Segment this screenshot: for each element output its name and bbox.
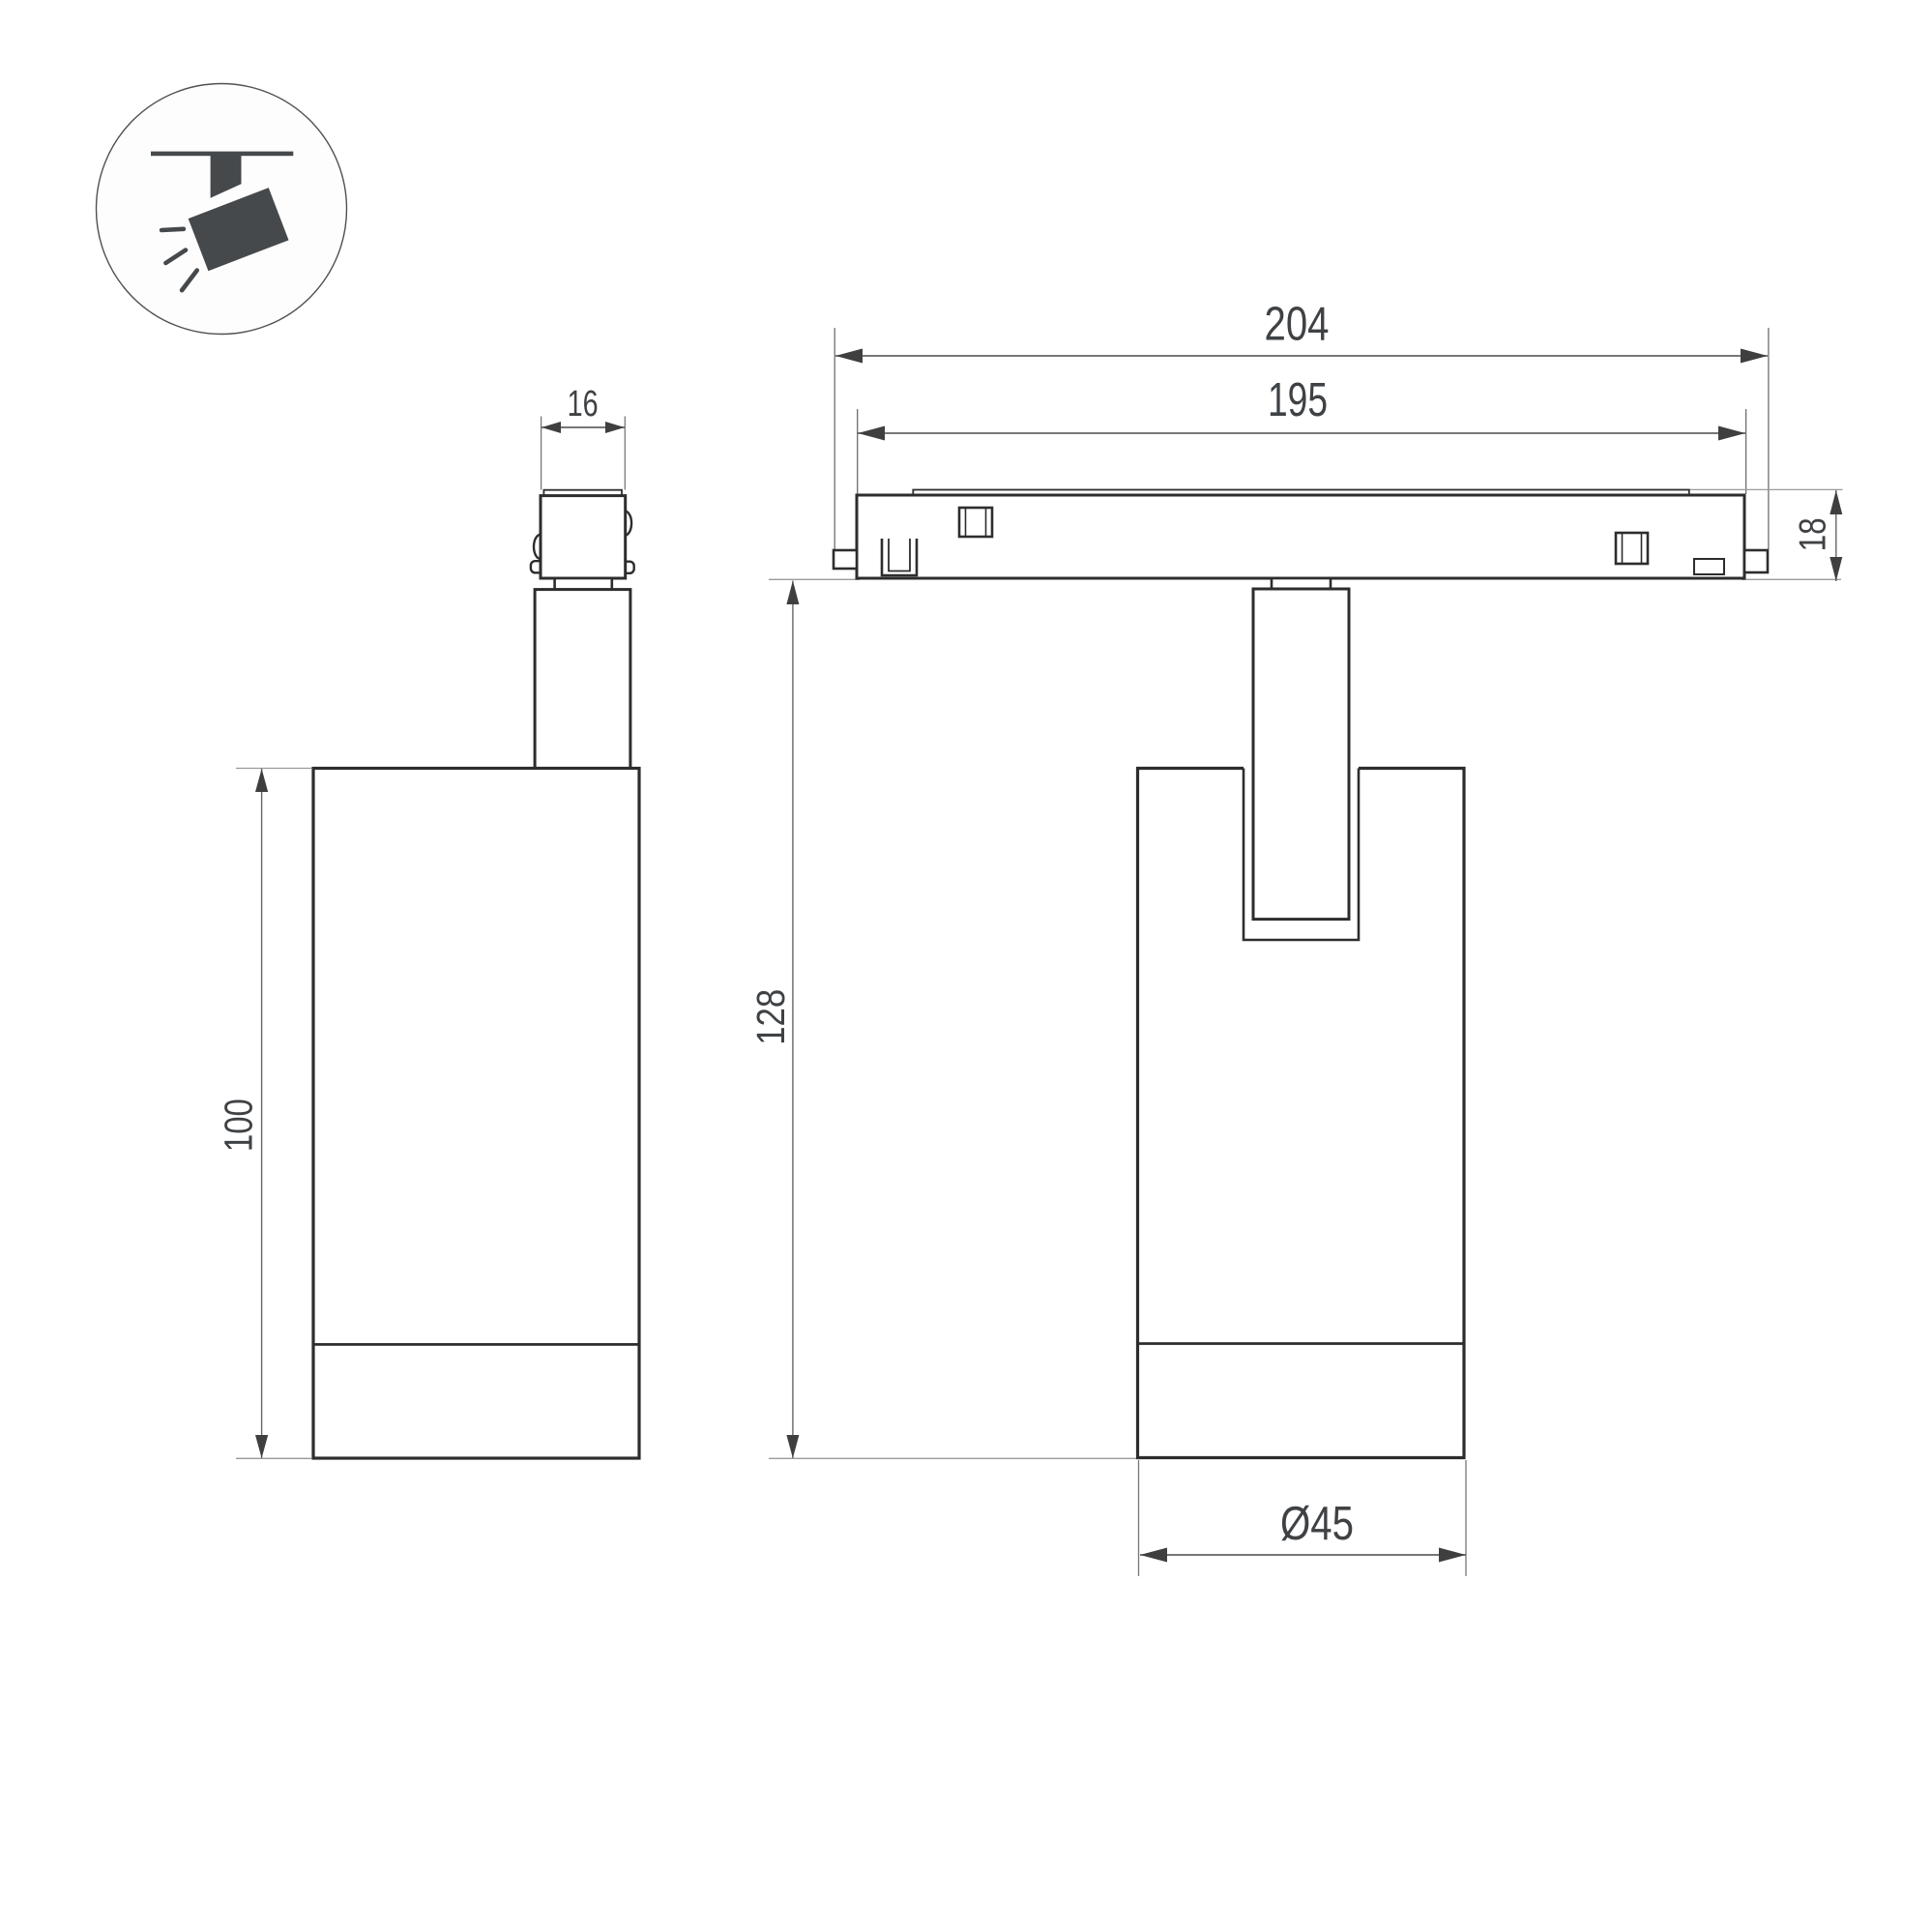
svg-text:100: 100 — [216, 1098, 260, 1152]
svg-text:18: 18 — [1792, 517, 1833, 551]
svg-text:195: 195 — [1268, 374, 1328, 426]
svg-text:128: 128 — [748, 989, 793, 1045]
svg-text:16: 16 — [568, 384, 599, 424]
svg-text:204: 204 — [1265, 299, 1330, 351]
svg-text:Ø45: Ø45 — [1280, 1498, 1354, 1550]
